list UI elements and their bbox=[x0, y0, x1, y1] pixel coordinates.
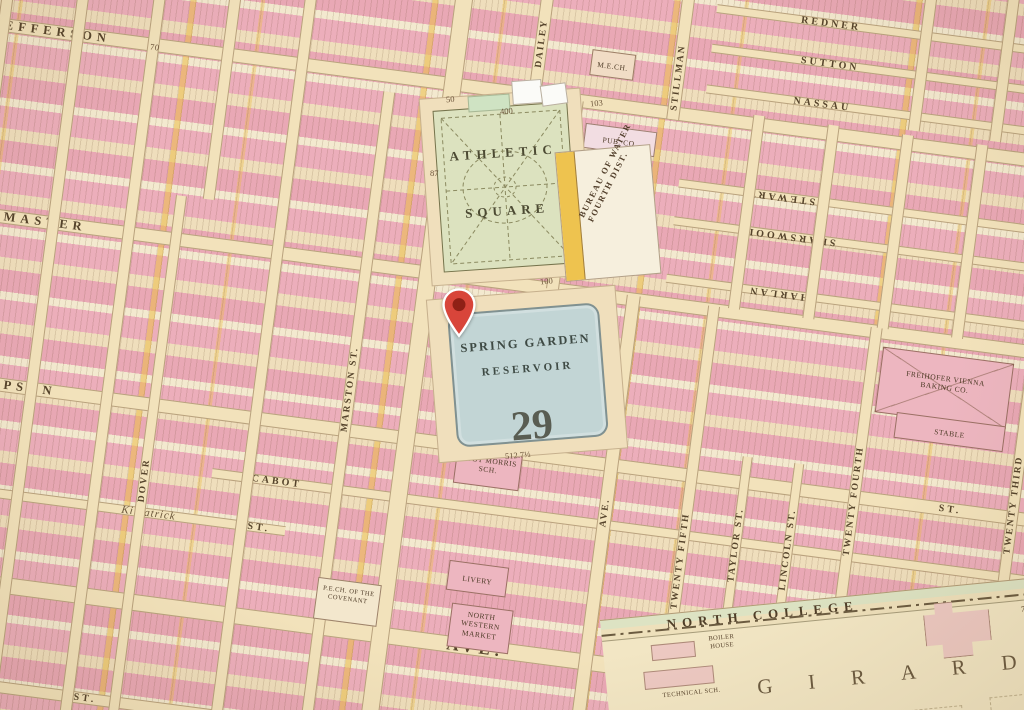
me-church-label: M.E.CH. bbox=[597, 60, 629, 73]
bureau-of-water-block: BUREAU OF WATER FOURTH DIST. bbox=[555, 144, 662, 282]
street-label-stillman: STILLMAN bbox=[669, 44, 688, 111]
white-building bbox=[540, 82, 569, 106]
street bbox=[203, 0, 271, 200]
girard-college-label: GIRARD bbox=[756, 646, 1024, 700]
street-stillman: STILLMAN bbox=[666, 0, 717, 120]
church-of-the-covenant-building: P.E.CH. OF THE COVENANT bbox=[313, 577, 382, 627]
street bbox=[802, 125, 839, 320]
technical-school-building bbox=[643, 665, 714, 690]
street bbox=[989, 0, 1024, 142]
north-western-market-building: NORTH WESTERN MARKET bbox=[446, 603, 513, 655]
stable-label: STABLE bbox=[934, 427, 966, 440]
street-label-harlan: HARLAN bbox=[747, 284, 809, 303]
lot-number: 100 bbox=[540, 275, 554, 286]
street-label-ave_v: AVE. bbox=[598, 498, 612, 528]
street-label-sutton: SUTTON bbox=[800, 55, 860, 74]
lot-number: 50 bbox=[446, 94, 455, 105]
street bbox=[908, 0, 955, 132]
street-label-twenty3: TWENTY THIRD bbox=[1002, 455, 1024, 555]
street bbox=[951, 144, 988, 339]
livery-building: LIVERY bbox=[446, 560, 509, 598]
street-label-redner: REDNER bbox=[801, 14, 862, 33]
street bbox=[728, 115, 765, 310]
street-label-twenty5: TWENTY FIFTH bbox=[669, 512, 692, 610]
street-label-stewart: STEWART bbox=[746, 186, 816, 206]
map-viewport[interactable]: JEFFERSONREDNERSUTTONNASSAUSTEWARTSHARSW… bbox=[0, 0, 1024, 710]
street-label-nassau: NASSAU bbox=[793, 95, 852, 113]
street-label-cabot: CABOT bbox=[251, 473, 303, 491]
reservoir-label-2: RESERVOIR bbox=[453, 357, 601, 381]
boiler-house-label-2: HOUSE bbox=[710, 642, 734, 651]
livery-label: LIVERY bbox=[462, 574, 493, 587]
location-pin[interactable] bbox=[441, 288, 477, 338]
campus-parcel-outline bbox=[989, 679, 1024, 710]
pin-body bbox=[444, 289, 475, 335]
street-label-st_bottom: ST. bbox=[73, 692, 97, 706]
lot-number: 103 bbox=[590, 97, 604, 108]
street-label-st_right: ST. bbox=[938, 503, 962, 517]
lot-number: 70 bbox=[150, 41, 161, 52]
white-building bbox=[511, 79, 543, 105]
boiler-house-building bbox=[651, 641, 696, 661]
street-label-dover: DOVER bbox=[136, 458, 152, 503]
street-label-marston: MARSTON ST. bbox=[340, 346, 361, 433]
lot-number: 400 bbox=[500, 105, 514, 116]
park-paths bbox=[434, 103, 578, 272]
street-label-kilpatrick: Kilpatrick bbox=[121, 504, 177, 523]
lot-number: 87 bbox=[430, 168, 439, 178]
street bbox=[877, 134, 914, 329]
street-label-kilpatrick_st: ST. bbox=[247, 521, 271, 535]
street-label-jefferson: JEFFERSON bbox=[0, 16, 112, 46]
building-number: 7 bbox=[1021, 604, 1024, 615]
street-label-dailey: DAILEY bbox=[533, 19, 549, 69]
campus-parcel-outline bbox=[761, 705, 971, 710]
pin-dot bbox=[453, 298, 466, 311]
me-church-building: M.E.CH. bbox=[589, 49, 636, 81]
